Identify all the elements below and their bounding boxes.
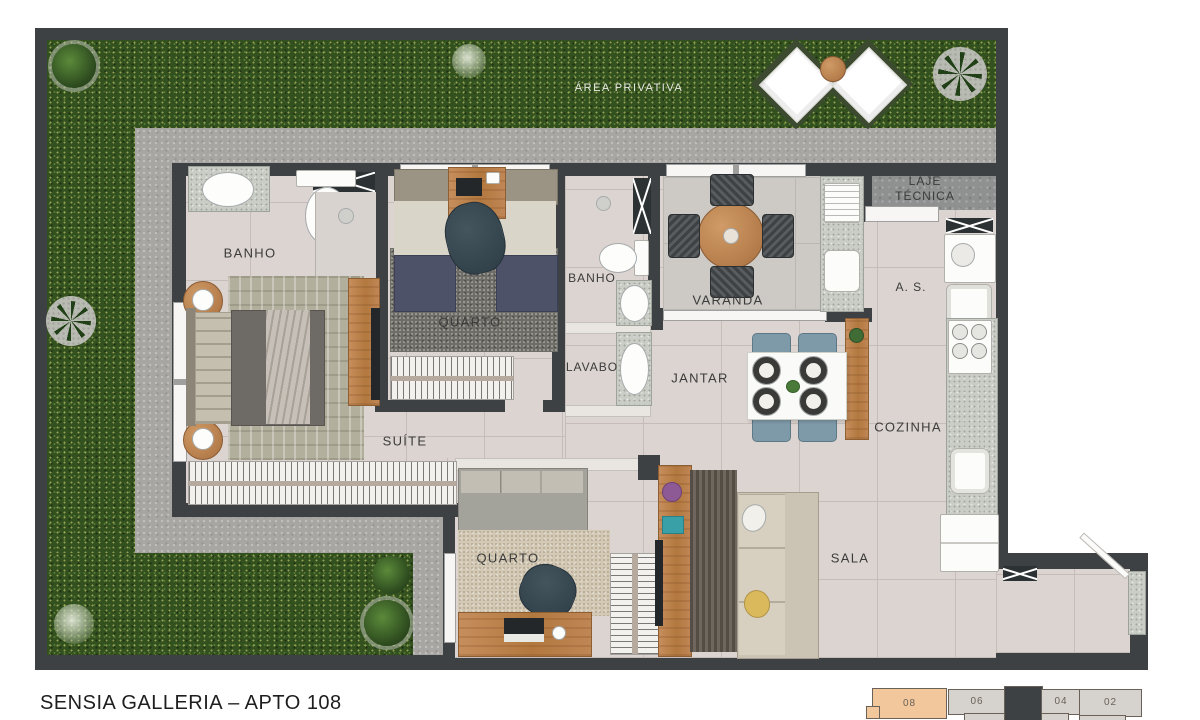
shelf-laje [865,206,939,222]
key-plan-unit-08: 08 [872,688,947,719]
varanda-label: VARANDA [693,293,764,308]
sala-label: SALA [831,551,869,566]
quarto2-laptop [504,618,544,642]
key-plan-unit-04: 04 [1041,689,1081,715]
varanda-grill [824,183,860,223]
cozinha-sink [950,448,990,494]
suite-label: SUÍTE [383,434,428,449]
plant-agave-left [51,301,91,341]
laje-tecnica-label-line2: TÉCNICA [895,189,955,203]
quarto1-bed1-pillow [394,169,456,205]
sill-varanda-south [663,310,827,321]
wall-quarto1-south-a [388,400,505,412]
banho2-sink [620,285,649,322]
shaft-banho2 [633,178,651,234]
as-washer-door [951,243,975,267]
floor-entry-hall [996,569,1130,653]
plant-agave-top-right [938,52,982,96]
cozinha-label: COZINHA [874,420,942,435]
cozinha-burner-2 [971,324,987,340]
cozinha-burner-3 [952,343,968,359]
jantar-centerpiece [786,380,800,393]
window-quarto2-west [444,553,456,643]
key-plan-unit-06-tab [964,713,1006,720]
varanda-chair-east [762,214,794,258]
quarto1-bed2-blanket [496,255,558,312]
suite-wardrobe [188,461,457,505]
jantar-setting-2 [799,356,828,385]
suite-bed-throw [266,310,310,424]
suite-tv [371,308,380,400]
area-privativa-label: ÁREA PRIVATIVA [575,82,683,94]
suite-pillows [195,312,235,424]
jantar-setting-4 [799,387,828,416]
shaft-entry [1003,566,1037,581]
quarto1-bed1-blanket [394,255,456,312]
wall-quarto1-south-b [543,400,565,412]
jantar-label: JANTAR [671,371,728,386]
banho2-toilet-bowl [599,243,637,273]
sala-tv [655,540,663,626]
plant-bush-top-middle [452,44,486,78]
key-plan-unit-02: 02 [1079,689,1142,717]
quarto2-closet [610,553,659,655]
jantar-setting-1 [752,356,781,385]
quarto1-laptop [456,178,482,196]
plant-bush-grass-2 [364,600,410,646]
quarto1-desk-item [486,172,500,184]
plant-bush-top-left [52,44,96,88]
floor-plan-canvas: ÁREA PRIVATIVA BANHO QUARTO BANHO LAVABO… [0,0,1200,720]
quarto1-wardrobe [390,356,514,400]
varanda-bbq-sink [824,250,860,292]
varanda-chair-north [710,174,754,206]
laje-tecnica-label-line1: LAJE [909,174,942,188]
banho1-sink [202,172,254,207]
cozinha-burner-1 [952,324,968,340]
walkway-top [135,128,996,166]
key-plan-unit-06: 06 [948,689,1006,715]
plant-bush-bottom-left [54,604,94,644]
jantar-setting-3 [752,387,781,416]
key-plan-unit-02-tab [1079,715,1126,720]
banho2-shower-head-icon [596,196,611,211]
banho1-toilet-tank [296,170,356,187]
sala-rack-books [662,516,684,534]
banho2-label: BANHO [568,271,616,285]
banho1-label: BANHO [224,246,277,261]
banho1-shower-head-icon [338,208,354,224]
key-plan-core [1004,686,1043,720]
servico-label: A. S. [895,280,926,294]
cozinha-fridge [940,514,999,572]
plant-bush-grass-1 [372,556,410,594]
jantar-sideboard-plant [849,328,864,343]
shaft-as [946,218,993,233]
grass-bottom-left [47,553,413,655]
entry-threshold [1128,571,1146,635]
varanda-chair-west [668,214,700,258]
key-plan-unit-04-tab [1041,713,1069,720]
plan-title: SENSIA GALLERIA – APTO 108 [40,692,342,715]
wall-lavabo-south [565,405,651,417]
quarto2-desk-mug [552,626,566,640]
quarto2-bed-pillows [461,471,583,493]
suite-lamp-bottom [192,428,214,450]
key-plan: 08 06 04 02 [866,684,1146,720]
varanda-table-center [723,228,739,244]
sala-rug [690,470,737,652]
deck-side-table [820,56,846,82]
lavabo-sink [620,343,649,395]
quarto2-label: QUARTO [477,551,540,566]
cozinha-burner-4 [971,343,987,359]
quarto1-label: QUARTO [439,315,502,330]
lavabo-label: LAVABO [566,360,618,374]
wall-suite-south [172,503,460,517]
key-plan-unit-08-tab [866,706,880,719]
wall-quarto2-ne-post [638,455,660,480]
sala-rack-flowers [662,482,682,502]
